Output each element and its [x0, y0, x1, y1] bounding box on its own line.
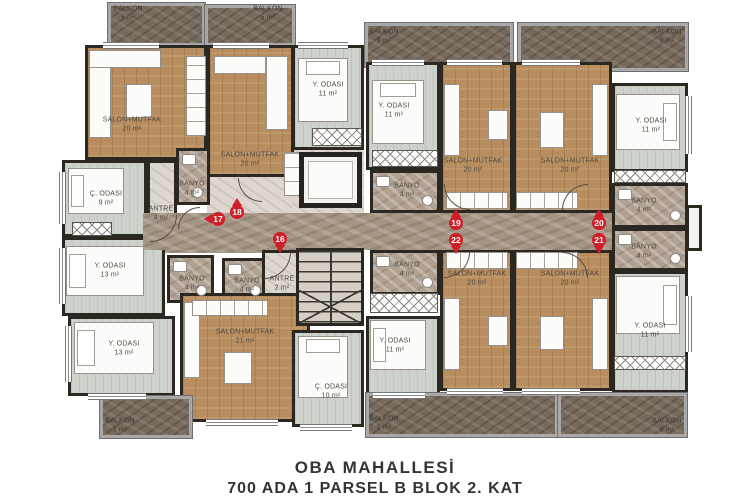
room-name: SALON+MUTFAK [541, 271, 600, 280]
room-name: BALKON [652, 418, 682, 427]
unit-pin-22: 22 [449, 233, 463, 247]
window-0 [103, 42, 159, 49]
room-area: 9 m² [652, 426, 682, 435]
room-area: 20 m² [221, 160, 280, 169]
door-swing-7 [178, 207, 200, 229]
room-name: BALKON [253, 6, 283, 15]
bed-pillow [71, 175, 84, 207]
room-label-y-odasi: Y. ODASI11 m² [379, 338, 410, 355]
room-label-odasi: Ç. ODASI10 m² [315, 384, 347, 401]
window-10 [88, 393, 146, 400]
room-area: 10 m² [315, 392, 347, 401]
room-name: Y. ODASI [108, 341, 139, 350]
sink-fixture [376, 176, 390, 187]
room-area: 9 m² [90, 199, 122, 208]
room-name: BANYO [631, 244, 657, 253]
sofa-15 [444, 298, 460, 370]
room-name: BANYO [394, 262, 420, 271]
unit-pin-17: 17 [211, 212, 225, 226]
room-name: BALKON [369, 416, 399, 425]
plan-caption: OBA MAHALLESİ 700 ADA 1 PARSEL B BLOK 2.… [0, 458, 750, 498]
sink-fixture [376, 256, 390, 267]
room-area: 20 m² [444, 166, 503, 175]
closet-5 [72, 222, 112, 236]
room-area: 4 m² [394, 191, 420, 200]
window-1 [213, 42, 269, 49]
toilet-fixture [670, 253, 681, 264]
room-name: BANYO [179, 276, 205, 285]
window-16 [685, 296, 692, 352]
room-name: BANYO [179, 181, 205, 190]
room-area: 20 m² [448, 279, 507, 288]
room-area: 13 m² [94, 271, 125, 280]
unit-pin-20: 20 [592, 216, 606, 230]
box-20 [540, 112, 564, 148]
room-label-antre: ANTRE4 m² [149, 206, 174, 223]
room-name: Y. ODASI [635, 118, 666, 127]
room-area: 4 m² [179, 189, 205, 198]
room-label-y-odasi: Y. ODASI11 m² [312, 82, 343, 99]
floor-plan-canvas: BALKON5 m²BALKON5 m²BALKON9 m²BALKON9 m²… [0, 0, 750, 500]
room-area: 5 m² [113, 14, 143, 23]
window-3 [372, 59, 424, 66]
toilet-fixture [422, 277, 433, 288]
room-label-salon-mutfak: SALON+MUTFAK20 m² [448, 271, 507, 288]
room-name: SALON+MUTFAK [448, 271, 507, 280]
room-area: 4 m² [631, 206, 657, 215]
sofa-16 [592, 298, 608, 370]
unit-pin-19: 19 [449, 216, 463, 230]
room-label-banyo: BANYO4 m² [234, 278, 260, 295]
room-name: SALON+MUTFAK [103, 117, 162, 126]
room-name: BANYO [234, 278, 260, 287]
bed-pillow [663, 285, 677, 325]
room-label-y-odasi: Y. ODASI11 m² [634, 323, 665, 340]
room-label-balkon: BALKON9 m² [652, 418, 682, 435]
bed-pillow [77, 330, 95, 366]
unit-pin-18: 18 [230, 205, 244, 219]
window-5 [522, 59, 580, 66]
unit-pin-16: 16 [273, 232, 287, 246]
room-label-banyo: BANYO4 m² [179, 181, 205, 198]
room-name: BALKON [105, 418, 135, 427]
room-area: 20 m² [541, 166, 600, 175]
closet-4 [614, 356, 686, 370]
room-area: 5 m² [253, 14, 283, 23]
sink-fixture [173, 261, 187, 272]
room-label-balkon: BALKON9 m² [369, 29, 399, 46]
bed-pillow [306, 339, 341, 353]
window-7 [59, 172, 66, 224]
room-label-salon-mutfak: SALON+MUTFAK20 m² [444, 158, 503, 175]
box-19 [488, 110, 508, 140]
caption-parcel-block-floor: 700 ADA 1 PARSEL B BLOK 2. KAT [0, 480, 750, 498]
window-6 [685, 96, 692, 154]
service-shaft [686, 205, 702, 251]
sofa-10 [89, 50, 161, 68]
room-label-salon-mutfak: SALON+MUTFAK20 m² [103, 117, 162, 134]
room-area: 20 m² [541, 279, 600, 288]
room-name: Y. ODASI [634, 323, 665, 332]
room-label-salon-mutfak: SALON+MUTFAK20 m² [221, 152, 280, 169]
room-area: 4 m² [149, 214, 174, 223]
window-9 [65, 326, 72, 382]
closet-1 [312, 128, 362, 146]
room-area: 4 m² [234, 286, 260, 295]
counter-24 [186, 56, 206, 136]
room-area: 9 m² [369, 424, 399, 433]
toilet-fixture [670, 210, 681, 221]
room-name: SALON+MUTFAK [221, 152, 280, 161]
window-15 [522, 388, 580, 395]
window-11 [206, 419, 278, 426]
room-name: BALKON [113, 6, 143, 15]
toilet-fixture [422, 195, 433, 206]
box-22 [540, 316, 564, 350]
room-label-y-odasi: Y. ODASI11 m² [635, 118, 666, 135]
room-label-balkon: BALKON5 m² [105, 418, 135, 435]
room-label-balkon: BALKON9 m² [652, 29, 682, 46]
box-18 [126, 84, 152, 118]
room-label-banyo: BANYO4 m² [394, 183, 420, 200]
window-14 [447, 388, 503, 395]
bed-pillow [380, 83, 416, 97]
sofa-12 [214, 56, 266, 74]
window-2 [298, 42, 348, 49]
closet-2 [370, 293, 438, 313]
room-name: BANYO [631, 198, 657, 207]
room-name: Y. ODASI [94, 263, 125, 272]
counter-30 [192, 300, 268, 316]
box-21 [488, 316, 508, 346]
room-name: SALON+MUTFAK [216, 329, 275, 338]
closet-0 [372, 150, 438, 167]
staircase [296, 248, 364, 326]
room-name: SALON+MUTFAK [444, 158, 503, 167]
room-area: 4 m² [631, 252, 657, 261]
sofa-11 [266, 56, 288, 130]
room-label-banyo: BANYO4 m² [631, 198, 657, 215]
room-area: 5 m² [105, 426, 135, 435]
room-name: Ç. ODASI [315, 384, 347, 393]
room-label-odasi: Ç. ODASI9 m² [90, 191, 122, 208]
room-name: Y. ODASI [379, 338, 410, 347]
sofa-13 [444, 84, 460, 156]
caption-neighborhood: OBA MAHALLESİ [0, 458, 750, 478]
room-label-salon-mutfak: SALON+MUTFAK20 m² [541, 158, 600, 175]
room-name: Y. ODASI [312, 82, 343, 91]
room-label-balkon: BALKON9 m² [369, 416, 399, 433]
room-area: 11 m² [312, 90, 343, 99]
room-name: SALON+MUTFAK [541, 158, 600, 167]
room-label-antre: ANTRE2 m² [270, 276, 295, 293]
closet-3 [614, 170, 686, 183]
room-label-salon-mutfak: SALON+MUTFAK20 m² [541, 271, 600, 288]
room-label-balkon: BALKON5 m² [113, 6, 143, 23]
sink-fixture [228, 264, 242, 275]
box-23 [224, 352, 252, 384]
room-name: ANTRE [270, 276, 295, 285]
room-name: Ç. ODASI [90, 191, 122, 200]
sofa-14 [592, 84, 608, 156]
sink-fixture [618, 189, 632, 200]
window-8 [59, 248, 66, 304]
room-label-y-odasi: Y. ODASI13 m² [94, 263, 125, 280]
room-area: 4 m² [394, 270, 420, 279]
floor-plan-page: BALKON5 m²BALKON5 m²BALKON9 m²BALKON9 m²… [0, 0, 750, 500]
room-name: BALKON [652, 29, 682, 38]
room-name: BANYO [394, 183, 420, 192]
room-label-banyo: BANYO4 m² [179, 276, 205, 293]
elevator [299, 152, 362, 208]
room-area: 11 m² [378, 111, 409, 120]
window-4 [447, 59, 502, 66]
bed-pillow [306, 61, 341, 75]
sink-fixture [182, 154, 196, 165]
room-name: BALKON [369, 29, 399, 38]
room-area: 11 m² [379, 346, 410, 355]
stair-winders [299, 290, 361, 323]
unit-pin-21: 21 [592, 233, 606, 247]
room-area: 11 m² [635, 126, 666, 135]
room-label-balkon: BALKON5 m² [253, 6, 283, 23]
room-label-y-odasi: Y. ODASI13 m² [108, 341, 139, 358]
room-area: 4 m² [179, 284, 205, 293]
room-label-banyo: BANYO4 m² [394, 262, 420, 279]
room-label-salon-mutfak: SALON+MUTFAK21 m² [216, 329, 275, 346]
room-area: 11 m² [634, 331, 665, 340]
room-area: 13 m² [108, 349, 139, 358]
sink-fixture [618, 234, 632, 245]
room-area: 2 m² [270, 284, 295, 293]
room-area: 20 m² [103, 125, 162, 134]
window-13 [373, 392, 425, 399]
room-label-y-odasi: Y. ODASI11 m² [378, 103, 409, 120]
room-area: 9 m² [652, 37, 682, 46]
room-name: ANTRE [149, 206, 174, 215]
bed-pillow [69, 254, 86, 289]
room-area: 9 m² [369, 37, 399, 46]
elevator-cab [308, 161, 353, 199]
room-name: Y. ODASI [378, 103, 409, 112]
room-label-banyo: BANYO4 m² [631, 244, 657, 261]
room-area: 21 m² [216, 337, 275, 346]
window-12 [300, 424, 352, 431]
